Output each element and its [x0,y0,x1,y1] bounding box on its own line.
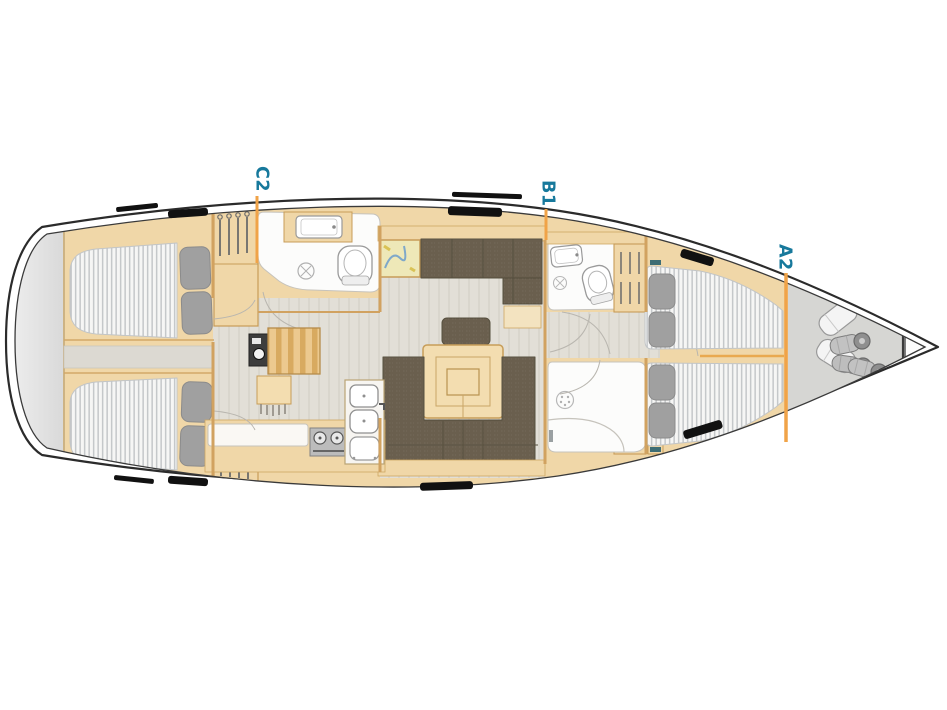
hatch-icon [168,476,208,487]
sink-icon [550,244,583,267]
chart-table [380,240,420,277]
dinette-base-trim [378,460,545,476]
cabin-label-text: A2 [775,244,795,271]
cabin-label-text: B1 [538,180,558,207]
nav-desk [268,328,320,374]
hatch-icon [448,206,502,217]
salon-stool [442,318,490,345]
wardrobe-forward-top [614,244,646,312]
bed-mattress [70,243,177,338]
yacht-plan-svg: C2 B1 A2 [0,0,947,710]
wardrobe-aft-port [214,206,258,326]
yacht-layout-plan: C2 B1 A2 [0,0,947,710]
stove-icon [310,428,347,456]
salon-table [423,345,503,418]
forward-shower [548,362,646,452]
sofa-side-shelf [504,306,541,328]
interior [0,188,943,498]
faucet-icon [332,225,336,229]
hull-window [452,192,522,199]
galley-sink-unit [345,380,384,464]
reading-light-icon [650,260,661,265]
oven-door [350,437,379,460]
cabin-label-text: C2 [252,166,272,192]
hull-window [114,475,154,484]
galley-counter [208,424,308,446]
toilet-icon [338,246,372,285]
reading-light-icon [650,447,661,452]
